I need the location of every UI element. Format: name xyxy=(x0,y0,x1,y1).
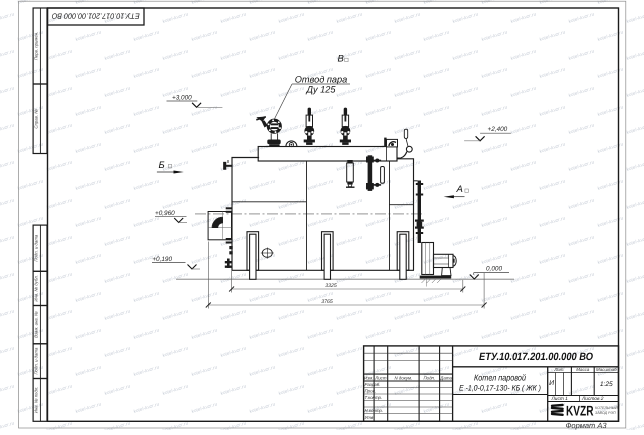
svg-text:Н.контр.: Н.контр. xyxy=(365,408,384,413)
svg-text:Подп. и дата: Подп. и дата xyxy=(34,347,39,375)
svg-text:Лист: Лист xyxy=(374,375,387,380)
svg-text:Листов 2: Листов 2 xyxy=(581,396,604,402)
svg-text:Инв. № дубл.: Инв. № дубл. xyxy=(34,275,39,301)
svg-text:Е -1,0-0,17-130- КБ ( ЖК ): Е -1,0-0,17-130- КБ ( ЖК ) xyxy=(459,384,541,393)
svg-text:1:25: 1:25 xyxy=(600,381,613,388)
svg-text:КОТЕЛЬНЫЙ: КОТЕЛЬНЫЙ xyxy=(595,405,618,410)
svg-text:Т.контр.: Т.контр. xyxy=(365,395,383,400)
svg-text:Разраб.: Разраб. xyxy=(365,382,381,387)
svg-text:+2,400: +2,400 xyxy=(488,126,508,133)
svg-text:ЕТУ.10.017.201.00.000 ВО: ЕТУ.10.017.201.00.000 ВО xyxy=(479,351,594,363)
svg-text:А: А xyxy=(456,184,463,195)
svg-text:В: В xyxy=(338,54,345,65)
svg-text:Б: Б xyxy=(159,160,165,171)
svg-text:Подп.: Подп. xyxy=(423,375,435,380)
svg-text:3765: 3765 xyxy=(321,299,333,305)
svg-text:KVZR: KVZR xyxy=(566,403,594,419)
svg-text:Изм.: Изм. xyxy=(364,375,373,380)
svg-text:Подп. и дата: Подп. и дата xyxy=(34,234,39,262)
svg-text:N докум.: N докум. xyxy=(395,375,413,380)
svg-text:Пров.: Пров. xyxy=(365,389,377,394)
svg-text:Масштаб: Масштаб xyxy=(596,367,617,372)
svg-text:Дата: Дата xyxy=(439,375,452,380)
svg-text:Утв.: Утв. xyxy=(365,415,375,420)
svg-text:Котел паровой: Котел паровой xyxy=(474,373,526,383)
svg-text:0,000: 0,000 xyxy=(486,266,502,273)
svg-text:Ду 125: Ду 125 xyxy=(305,85,336,95)
svg-text:Отвод пара: Отвод пара xyxy=(295,75,348,85)
svg-text:Инв. № подл.: Инв. № подл. xyxy=(34,387,39,414)
svg-text:Формат А3: Формат А3 xyxy=(565,421,607,430)
svg-text:Лит.: Лит. xyxy=(553,367,564,372)
svg-text:ЕТУ.10.017.201.00.000 ВО: ЕТУ.10.017.201.00.000 ВО xyxy=(52,12,140,21)
svg-text:Масса: Масса xyxy=(576,367,590,372)
svg-text:Перв. примен.: Перв. примен. xyxy=(34,32,39,61)
svg-text:ЗАВОД РЭП: ЗАВОД РЭП xyxy=(595,411,616,415)
svg-text:Справ. №: Справ. № xyxy=(34,109,39,129)
svg-text:Взам. инв. №: Взам. инв. № xyxy=(34,311,39,338)
svg-text:3325: 3325 xyxy=(325,283,337,289)
svg-text:+3,000: +3,000 xyxy=(172,95,192,102)
svg-text:Лист 1: Лист 1 xyxy=(551,396,569,402)
